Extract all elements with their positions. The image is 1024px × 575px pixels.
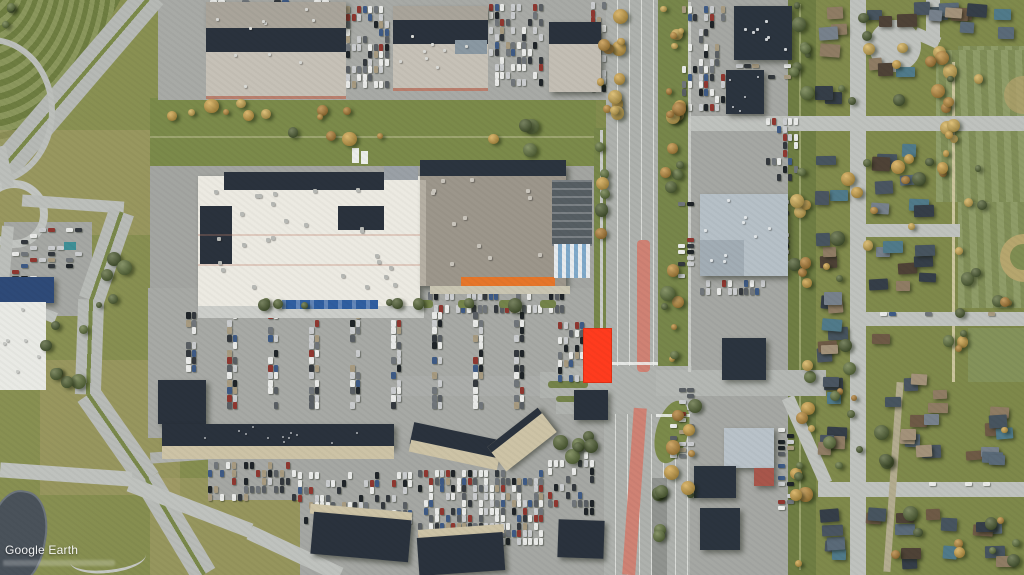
parked-car xyxy=(710,14,714,21)
parked-car xyxy=(274,470,278,477)
parked-car xyxy=(30,258,37,262)
parked-car xyxy=(479,508,483,515)
parked-car xyxy=(554,484,558,491)
parked-car xyxy=(495,4,499,11)
tree xyxy=(925,158,934,167)
bigbox-roof-navy xyxy=(224,172,384,190)
parked-car xyxy=(359,495,363,502)
parked-car xyxy=(208,486,212,493)
parked-car xyxy=(670,424,677,428)
rooftop-unit xyxy=(3,342,6,345)
parked-car xyxy=(484,508,488,515)
residential-street xyxy=(850,0,866,575)
parked-car xyxy=(220,494,224,501)
rooftop-unit xyxy=(268,53,271,56)
parked-car xyxy=(274,335,279,342)
parked-car xyxy=(391,357,396,364)
tree xyxy=(655,485,668,498)
parked-car xyxy=(233,357,238,364)
rooftop-unit xyxy=(744,216,747,219)
parked-car xyxy=(566,492,570,499)
parked-car xyxy=(575,375,579,382)
parked-car xyxy=(495,79,499,86)
parked-car xyxy=(457,515,461,522)
parked-car xyxy=(710,89,714,96)
parked-car xyxy=(268,470,272,477)
rooftop-unit xyxy=(271,236,275,240)
parked-car xyxy=(214,486,218,493)
parked-car xyxy=(500,64,504,71)
rooftop-unit xyxy=(37,355,40,358)
parked-car xyxy=(227,335,232,342)
parked-car xyxy=(385,44,389,51)
tree xyxy=(688,399,702,413)
parked-car xyxy=(520,387,525,394)
parked-car xyxy=(511,42,515,49)
parked-car xyxy=(717,288,721,295)
tree xyxy=(464,298,474,308)
parked-car xyxy=(368,14,372,21)
tree xyxy=(392,298,402,308)
house xyxy=(916,445,933,458)
parked-car xyxy=(512,530,516,537)
parked-car xyxy=(227,365,232,372)
parked-car xyxy=(280,470,284,477)
tree xyxy=(943,150,949,156)
parked-car xyxy=(438,402,443,409)
parked-car xyxy=(473,395,478,402)
parked-car xyxy=(350,380,355,387)
parked-car xyxy=(432,312,437,319)
tree xyxy=(912,172,926,186)
rooftop-unit xyxy=(488,256,492,260)
parked-car xyxy=(744,280,748,287)
rooftop-unit xyxy=(341,274,345,278)
parked-car xyxy=(523,508,527,515)
parked-car xyxy=(578,492,582,499)
parked-car xyxy=(739,288,743,295)
parked-car xyxy=(208,470,212,477)
parked-car xyxy=(687,394,694,398)
parked-car xyxy=(274,365,279,372)
entrance-awning xyxy=(282,300,378,309)
rooftop-unit xyxy=(360,229,364,233)
parked-car xyxy=(192,327,197,334)
parked-car xyxy=(385,81,389,88)
parked-car xyxy=(590,508,594,515)
parked-car xyxy=(424,470,428,477)
parked-car xyxy=(517,42,521,49)
parked-car xyxy=(495,72,499,79)
tree xyxy=(955,247,963,255)
parked-car xyxy=(385,29,389,36)
parked-car xyxy=(693,14,697,21)
parked-car xyxy=(715,104,719,111)
parked-car xyxy=(363,59,367,66)
parked-car xyxy=(575,345,579,352)
tree xyxy=(204,99,218,113)
parked-car xyxy=(766,118,770,125)
rooftop-unit xyxy=(313,189,317,193)
house xyxy=(965,451,981,461)
rooftop-unit xyxy=(304,223,308,227)
parked-car xyxy=(682,81,686,88)
parked-car xyxy=(484,478,488,485)
tree xyxy=(891,550,901,560)
parked-car xyxy=(48,246,55,250)
parked-car xyxy=(66,228,73,232)
parked-car xyxy=(783,150,787,157)
parked-car xyxy=(432,357,437,364)
storefront-apron xyxy=(430,286,570,294)
parked-car xyxy=(539,34,543,41)
parked-car xyxy=(227,402,232,409)
parked-car xyxy=(368,51,372,58)
pad-building-red-roof xyxy=(754,468,774,486)
tree xyxy=(288,127,298,137)
parked-car xyxy=(227,372,232,379)
parked-car xyxy=(528,500,532,507)
parked-car xyxy=(520,335,525,342)
parked-car xyxy=(522,27,526,34)
tree xyxy=(800,86,814,100)
rooftop-unit xyxy=(217,237,221,241)
parked-car xyxy=(309,402,314,409)
tree xyxy=(653,530,665,542)
rooftop-unit xyxy=(384,275,388,279)
parked-car xyxy=(501,515,505,522)
parked-car xyxy=(298,480,302,487)
tree xyxy=(598,39,610,51)
tree xyxy=(974,74,983,83)
house xyxy=(998,27,1014,39)
parked-car xyxy=(479,372,484,379)
parked-car xyxy=(704,14,708,21)
parked-car xyxy=(590,500,594,507)
parked-car xyxy=(495,42,499,49)
rooftop-unit xyxy=(765,38,768,41)
tree xyxy=(688,450,695,457)
house xyxy=(827,7,844,20)
parked-car xyxy=(965,482,972,486)
rooftop-unit xyxy=(365,285,369,289)
parked-car xyxy=(292,494,296,501)
parked-car xyxy=(558,367,562,374)
house xyxy=(926,509,940,520)
parked-car xyxy=(925,312,932,316)
parked-car xyxy=(699,81,703,88)
tree xyxy=(836,275,844,283)
parked-car xyxy=(397,472,401,479)
parked-car xyxy=(337,487,341,494)
parked-car xyxy=(700,288,704,295)
parked-car xyxy=(699,104,703,111)
tree xyxy=(830,391,840,401)
highlighted-parcel xyxy=(583,328,612,383)
parked-car xyxy=(514,357,519,364)
tree xyxy=(413,298,424,309)
parked-car xyxy=(451,493,455,500)
house xyxy=(831,549,845,560)
tree xyxy=(661,303,668,310)
parked-car xyxy=(268,387,273,394)
parked-car xyxy=(379,81,383,88)
parked-car xyxy=(495,478,499,485)
tree xyxy=(893,94,906,107)
parked-car xyxy=(517,493,521,500)
warehouse-roof-navy xyxy=(206,28,346,52)
parked-car xyxy=(473,485,477,492)
parked-car xyxy=(479,357,484,364)
commercial-building xyxy=(734,6,792,60)
parked-car xyxy=(517,500,521,507)
tree xyxy=(789,67,799,77)
tree xyxy=(891,160,905,174)
parked-car xyxy=(704,6,708,13)
parked-car xyxy=(489,4,493,11)
warehouse-roof xyxy=(206,52,346,98)
parked-car xyxy=(539,57,543,64)
storefront-orange-stripe xyxy=(461,277,555,286)
parked-car xyxy=(506,523,510,530)
rooftop-unit xyxy=(739,110,741,112)
parked-car xyxy=(679,454,686,458)
parked-car xyxy=(418,470,422,477)
parked-car xyxy=(512,485,516,492)
parked-car xyxy=(534,485,538,492)
parked-car xyxy=(733,288,737,295)
rooftop-unit xyxy=(356,432,358,434)
parked-car xyxy=(374,44,378,51)
parked-car xyxy=(368,44,372,51)
parked-car xyxy=(687,238,694,242)
parked-car xyxy=(929,482,936,486)
parked-car xyxy=(528,530,532,537)
tree xyxy=(989,547,996,554)
parked-car xyxy=(391,372,396,379)
parked-car xyxy=(560,484,564,491)
parked-car xyxy=(391,327,396,334)
satellite-map-canvas[interactable]: Google Earth xyxy=(0,0,1024,575)
tree xyxy=(377,133,383,139)
parked-car xyxy=(262,470,266,477)
parked-car xyxy=(274,387,279,394)
parked-car xyxy=(512,500,516,507)
parked-car xyxy=(506,49,510,56)
footpath xyxy=(150,136,596,138)
pad-building xyxy=(694,466,736,498)
parked-car xyxy=(397,342,402,349)
parked-car xyxy=(688,104,692,111)
warehouse-eave xyxy=(393,88,488,91)
tree xyxy=(897,43,907,53)
parked-car xyxy=(534,508,538,515)
tree xyxy=(955,345,962,352)
rooftop-unit xyxy=(290,432,292,434)
parked-car xyxy=(794,134,798,141)
parked-car xyxy=(391,402,396,409)
house xyxy=(819,43,840,58)
tree xyxy=(925,56,936,67)
parked-car xyxy=(363,6,367,13)
parked-car xyxy=(539,64,543,71)
parked-car xyxy=(397,357,402,364)
parked-car xyxy=(408,472,412,479)
parked-car xyxy=(517,4,521,11)
parked-car xyxy=(473,320,478,327)
rooftop-unit xyxy=(296,434,298,436)
parked-car xyxy=(679,388,686,392)
tree xyxy=(660,286,674,300)
strip-mall-building xyxy=(310,512,411,562)
parked-car xyxy=(517,530,521,537)
parked-car xyxy=(438,335,443,342)
rooftop-unit xyxy=(221,268,225,272)
parked-car xyxy=(379,21,383,28)
parked-car xyxy=(564,360,568,367)
parked-car xyxy=(778,452,785,456)
house xyxy=(821,345,838,355)
parked-car xyxy=(534,500,538,507)
parked-car xyxy=(418,485,422,492)
warehouse-eave xyxy=(206,96,346,99)
tree xyxy=(660,167,670,177)
parked-car xyxy=(710,74,714,81)
parked-car xyxy=(783,126,787,133)
parked-car xyxy=(522,34,526,41)
parked-car xyxy=(292,470,296,477)
parked-car xyxy=(678,202,685,206)
pad-building xyxy=(557,519,604,559)
rooftop-unit xyxy=(288,437,290,439)
parked-car xyxy=(374,66,378,73)
parked-car xyxy=(315,387,320,394)
parked-car xyxy=(57,246,64,250)
parked-car xyxy=(539,515,543,522)
parked-car xyxy=(778,506,785,510)
parked-car xyxy=(346,36,350,43)
parked-car xyxy=(379,44,383,51)
parked-car xyxy=(704,89,708,96)
parked-car xyxy=(473,380,478,387)
parked-car xyxy=(385,21,389,28)
parked-car xyxy=(722,280,726,287)
parked-car xyxy=(787,500,794,504)
garden-centre xyxy=(552,180,592,246)
parked-car xyxy=(192,357,197,364)
parked-car xyxy=(326,495,330,502)
parked-car xyxy=(233,342,238,349)
parked-car xyxy=(522,42,526,49)
tree xyxy=(40,340,52,352)
parked-car xyxy=(48,264,55,268)
parked-car xyxy=(435,470,439,477)
rooftop-unit xyxy=(756,28,759,31)
parked-car xyxy=(534,515,538,522)
parked-car xyxy=(304,487,308,494)
parked-car xyxy=(678,262,685,266)
parked-car xyxy=(777,158,781,165)
warehouse-gable xyxy=(455,40,487,54)
parked-car xyxy=(590,476,594,483)
parked-car xyxy=(572,500,576,507)
house xyxy=(960,22,974,34)
house xyxy=(874,180,893,194)
rooftop-unit xyxy=(441,179,445,183)
parked-car xyxy=(379,66,383,73)
parked-car xyxy=(602,70,606,77)
parked-car xyxy=(506,42,510,49)
house xyxy=(869,279,889,291)
tree xyxy=(851,395,857,401)
parked-car xyxy=(778,440,785,444)
rooftop-unit xyxy=(452,222,456,226)
parked-car xyxy=(783,118,787,125)
parked-car xyxy=(500,27,504,34)
parked-car xyxy=(506,72,510,79)
parked-car xyxy=(397,380,402,387)
highway-roadway xyxy=(606,0,658,412)
parked-car xyxy=(710,59,714,66)
parked-car xyxy=(403,487,407,494)
parked-car xyxy=(787,446,794,450)
parked-car xyxy=(233,380,238,387)
parked-car xyxy=(350,335,355,342)
parked-car xyxy=(315,380,320,387)
parked-car xyxy=(226,462,230,469)
parked-car xyxy=(286,462,290,469)
parked-car xyxy=(558,375,562,382)
house xyxy=(822,318,843,332)
parked-car xyxy=(501,470,505,477)
parked-car xyxy=(528,49,532,56)
parked-car xyxy=(357,14,361,21)
tree xyxy=(79,325,88,334)
rooftop-unit xyxy=(463,216,467,220)
tree xyxy=(7,3,15,11)
parked-car xyxy=(523,515,527,522)
parked-car xyxy=(527,305,531,313)
parked-car xyxy=(346,14,350,21)
rooftop-unit xyxy=(216,18,219,21)
parked-car xyxy=(501,493,505,500)
house xyxy=(966,3,987,18)
house xyxy=(815,86,833,100)
house xyxy=(919,272,937,282)
parked-car xyxy=(326,480,330,487)
parked-car xyxy=(440,478,444,485)
tree xyxy=(672,410,683,421)
parked-car xyxy=(286,478,290,485)
parked-car xyxy=(39,258,46,262)
residential-street xyxy=(664,116,1024,131)
parked-car xyxy=(522,64,526,71)
house xyxy=(871,333,889,343)
parked-car xyxy=(391,395,396,402)
tree xyxy=(830,231,845,246)
parked-car xyxy=(512,478,516,485)
parked-car xyxy=(520,312,525,319)
parked-car xyxy=(699,59,703,66)
parked-car xyxy=(479,327,484,334)
parked-car xyxy=(490,493,494,500)
parked-car xyxy=(446,515,450,522)
tree xyxy=(954,547,965,558)
parked-car xyxy=(506,493,510,500)
parked-car xyxy=(522,79,526,86)
parked-car xyxy=(744,64,751,68)
parked-car xyxy=(500,57,504,64)
